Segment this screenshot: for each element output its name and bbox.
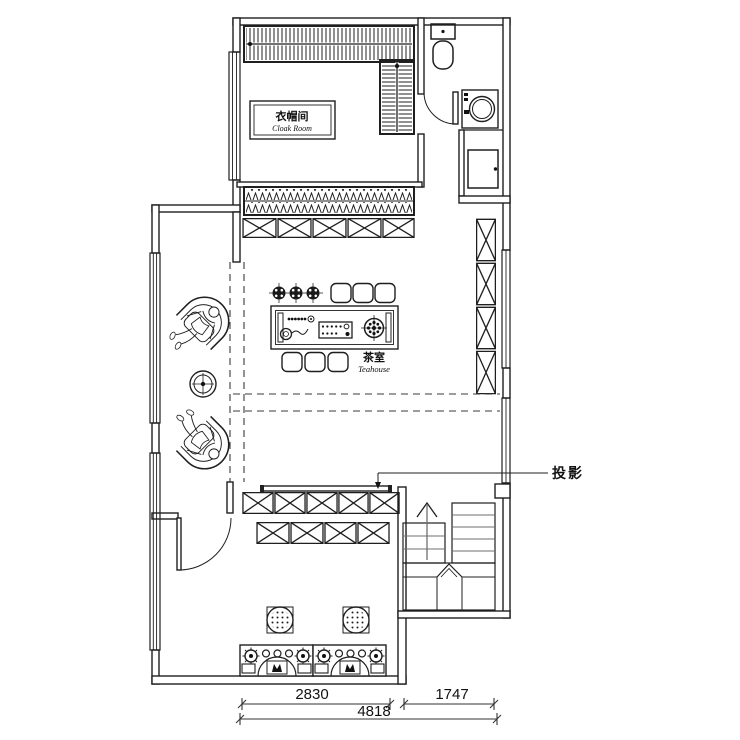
window-right-2 [502, 398, 510, 483]
cloak-room-label-en: Cloak Room [272, 124, 312, 133]
wardrobe-lower [244, 187, 414, 215]
plant-icon [303, 283, 323, 303]
projection-label: 投影 [552, 465, 584, 481]
dim-total: 4818 [357, 703, 390, 720]
wardrobe-side [380, 60, 414, 134]
side-table [190, 371, 216, 397]
tea-room-label-zh: 茶室 [362, 350, 385, 364]
vanity-station-2 [313, 645, 386, 676]
windows [150, 52, 510, 650]
bathroom-shelf [468, 150, 498, 188]
tea-room: 茶室 Teahouse [159, 283, 398, 479]
window-left-1 [150, 253, 160, 423]
projection: 投影 [260, 465, 584, 492]
door-lower-room [177, 518, 231, 570]
dim-right: 1747 [435, 686, 468, 703]
cabinet-row-lower-a [243, 493, 399, 514]
toilet [431, 24, 455, 69]
window-right-1 [502, 250, 510, 368]
floor-drain-2 [343, 607, 369, 633]
wardrobe-top [244, 26, 414, 62]
lower-room [240, 607, 386, 676]
armchair-1 [159, 287, 239, 367]
cloak-room-label-box: 衣帽间 Cloak Room [250, 101, 335, 139]
floor-drain-1 [267, 607, 293, 633]
cloak-room-label-zh: 衣帽间 [276, 109, 309, 123]
vanity-station-1 [240, 645, 313, 676]
stool [375, 284, 395, 303]
window-upper-left [229, 52, 240, 180]
stool [328, 353, 348, 372]
washing-machine [462, 90, 498, 128]
stool [282, 353, 302, 372]
cabinet-row-cloak [243, 219, 414, 238]
stool [353, 284, 373, 303]
window-left-2 [150, 453, 160, 650]
floor-plan: 衣帽间 Cloak Room [0, 0, 740, 740]
dim-left: 2830 [295, 686, 328, 703]
door-bathroom [424, 92, 458, 124]
stool [305, 353, 325, 372]
cabinet-row-lower-b [257, 523, 389, 544]
stool [331, 284, 351, 303]
armchair-2 [159, 399, 239, 479]
tea-room-label-en: Teahouse [358, 364, 390, 374]
cloak-room: 衣帽间 Cloak Room [244, 26, 414, 215]
cabinet-column-right [477, 219, 496, 393]
projection-screen [260, 485, 392, 492]
stair-up-arrow [417, 503, 437, 560]
tea-table [271, 306, 398, 349]
dimension-labels: 2830 1747 4818 [295, 686, 468, 720]
staircase [403, 503, 495, 610]
floor-plan-sheet: 衣帽间 Cloak Room [0, 0, 740, 740]
